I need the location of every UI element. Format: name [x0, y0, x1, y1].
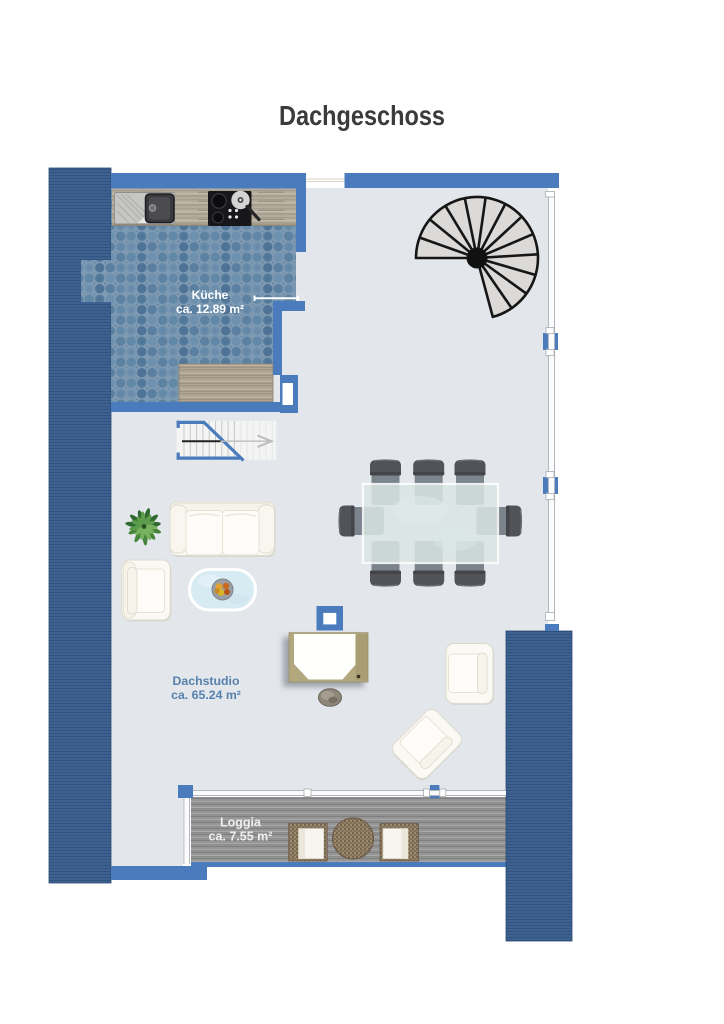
svg-text:ca. 7.55 m²: ca. 7.55 m² [209, 830, 273, 844]
svg-text:Küche: Küche [192, 288, 229, 302]
svg-text:ca. 12.89 m²: ca. 12.89 m² [176, 302, 244, 316]
svg-text:Dachstudio: Dachstudio [173, 674, 240, 688]
svg-text:ca. 65.24 m²: ca. 65.24 m² [171, 688, 241, 702]
svg-text:Dachgeschoss: Dachgeschoss [279, 100, 445, 131]
svg-text:Loggia: Loggia [220, 816, 262, 830]
